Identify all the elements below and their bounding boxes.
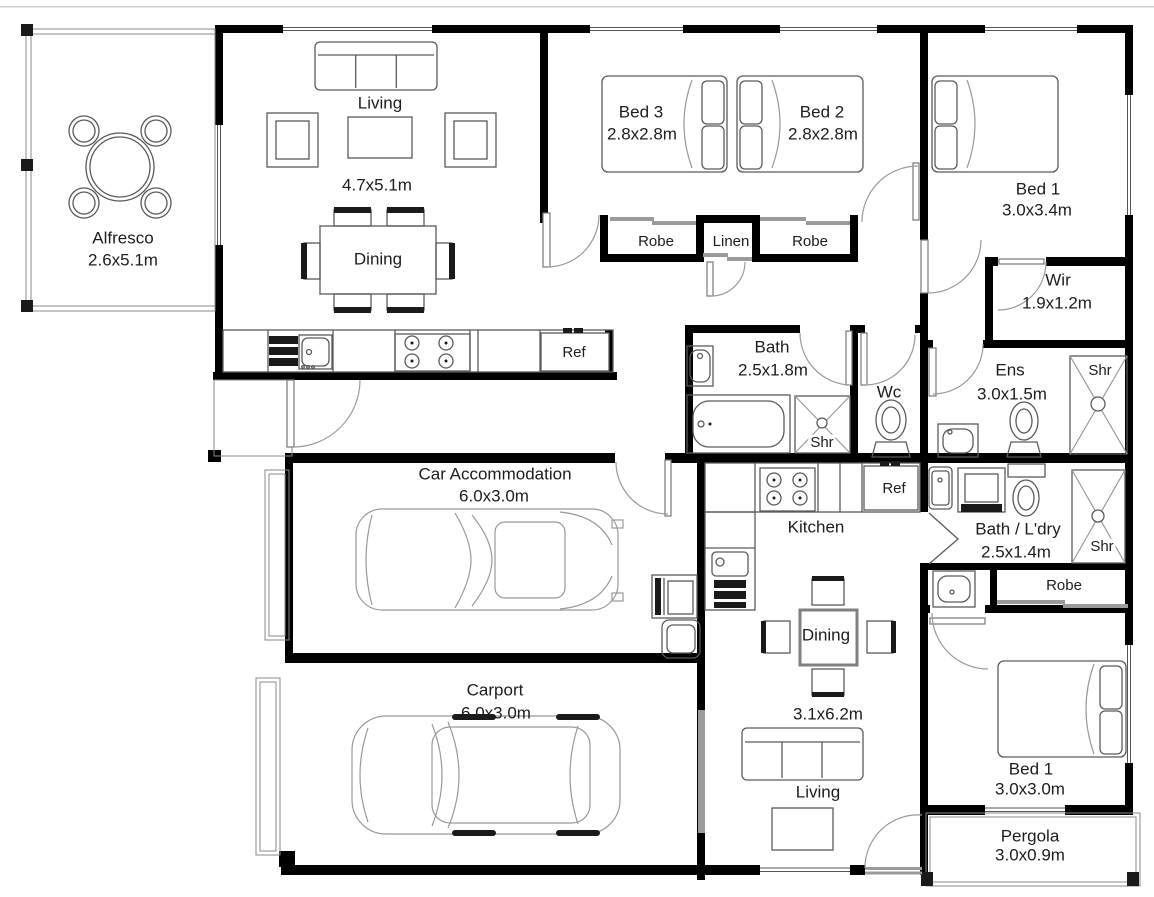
label-shr-ens: Shr: [1086, 363, 1113, 380]
garage-side-panel: [265, 470, 289, 640]
label-pergola-size: 3.0x0.9m: [995, 847, 1065, 866]
coffee-table: [348, 117, 412, 158]
label-living-unit: Living: [796, 784, 840, 803]
label-bath-name: Bath: [755, 339, 790, 358]
coffee-table: [772, 808, 833, 850]
walls: [208, 25, 1133, 880]
label-bed2-size: 2.8x2.8m: [788, 126, 858, 145]
label-bath-size: 2.5x1.8m: [738, 362, 808, 381]
label-car-accommodation-name: Car Accommodation: [418, 466, 571, 485]
carport-side-fence: [256, 678, 280, 855]
label-alfresco-name: Alfresco: [92, 230, 153, 249]
cooktop: [760, 468, 815, 511]
label-kitchen-unit: Kitchen: [788, 519, 845, 538]
linen-sliding-door[interactable]: [703, 253, 752, 261]
cooktop: [395, 334, 470, 371]
wc-door: [861, 333, 915, 385]
bed2-door: [862, 163, 919, 222]
pillow: [702, 126, 724, 169]
toilet: [1008, 464, 1045, 516]
label-robe-bed2: Robe: [792, 234, 828, 251]
toilet: [1007, 402, 1041, 457]
bed1-unit-furniture: [998, 661, 1126, 757]
label-dining-unit-name: Dining: [802, 627, 850, 646]
pillow: [935, 126, 957, 169]
label-bed1-main-name: Bed 1: [1016, 181, 1060, 200]
label-dining-main-name: Dining: [354, 251, 402, 270]
label-bed1-main-size: 3.0x3.4m: [1002, 202, 1072, 221]
vanity-sink: [933, 571, 975, 607]
window-bed1-right: [1125, 95, 1133, 215]
laundry-bifold-door: [929, 513, 958, 564]
doors[interactable]: [287, 163, 1046, 875]
label-shr-bath: Shr: [808, 435, 835, 452]
washing-machine: [652, 575, 697, 618]
label-dining-unit-size: 3.1x6.2m: [793, 706, 863, 725]
label-ens-name: Ens: [995, 362, 1024, 381]
floor-plan: Alfresco 2.6x5.1m Living 4.7x5.1m Dining…: [0, 0, 1154, 897]
bed3-door: [543, 213, 599, 267]
label-linen: Linen: [713, 234, 750, 251]
window-living-top: [283, 25, 432, 33]
label-car-accommodation-size: 6.0x3.0m: [459, 488, 529, 507]
carport-gate[interactable]: [698, 710, 705, 833]
wc-fixtures: [872, 400, 910, 457]
alfresco-table-setting: [69, 116, 171, 218]
living-unit-entry-door: [865, 815, 922, 875]
robe-bed3-sliding-door[interactable]: [610, 217, 696, 225]
hall-door: [707, 262, 745, 296]
armchair: [445, 113, 496, 167]
label-ens-size: 3.0x1.5m: [977, 386, 1047, 405]
label-ref-main: Ref: [562, 345, 585, 362]
pillow: [740, 126, 762, 169]
label-wc: Wc: [877, 384, 902, 403]
kitchen-sink: [712, 552, 748, 608]
car-accommodation-contents: [356, 509, 700, 658]
sofa: [742, 728, 863, 780]
window-living-unit-south: [760, 866, 850, 874]
label-bed3-size: 2.8x2.8m: [607, 126, 677, 145]
laundry-tub: [929, 467, 952, 509]
laundry-tub: [662, 620, 700, 658]
toilet: [872, 400, 910, 457]
carport-contents: [352, 714, 620, 836]
bathtub: [687, 395, 790, 453]
label-bath-laundry-name: Bath / L'dry: [973, 521, 1062, 540]
pillow: [935, 81, 957, 124]
washing-machine: [958, 468, 1005, 512]
page-border-line: [0, 6, 1154, 8]
sliding-door-living-west[interactable]: [215, 125, 223, 245]
label-bed2-name: Bed 2: [800, 104, 844, 123]
label-ref-unit: Ref: [882, 481, 905, 498]
label-alfresco-size: 2.6x5.1m: [88, 252, 158, 271]
ens-door: [929, 344, 983, 396]
label-carport-name: Carport: [467, 682, 524, 701]
window-bed2: [780, 25, 877, 33]
entry-porch: [214, 380, 292, 456]
pillow: [702, 81, 724, 124]
bed1-unit-door: [930, 613, 988, 669]
floor-plan-drawing: [0, 0, 1154, 897]
window-bed1-top: [985, 25, 1077, 33]
label-bed1-unit-size: 3.0x3.0m: [995, 781, 1065, 800]
label-bed1-unit-name: Bed 1: [1009, 761, 1053, 780]
label-living-main-name: Living: [358, 95, 402, 114]
pillow: [740, 81, 762, 124]
label-robe-bed3: Robe: [638, 234, 674, 251]
kitchen-main: [223, 328, 613, 372]
bed1-main-door: [921, 240, 981, 293]
armchair: [267, 113, 318, 167]
pillow: [1100, 711, 1122, 754]
label-bed3-name: Bed 3: [619, 104, 663, 123]
label-robe-unit: Robe: [1046, 578, 1082, 595]
label-wir-name: Wir: [1045, 272, 1070, 291]
sofa: [315, 42, 437, 90]
car-top-view: [352, 714, 620, 836]
robe-bed2-sliding-door[interactable]: [760, 217, 850, 225]
kitchen-sink: [269, 335, 332, 369]
entry-door: [287, 380, 360, 447]
car-top-view: [356, 509, 623, 610]
label-wir-size: 1.9x1.2m: [1022, 295, 1092, 314]
garage-door: [616, 460, 671, 516]
label-living-main-size: 4.7x5.1m: [342, 177, 412, 196]
label-bath-laundry-size: 2.5x1.4m: [979, 544, 1053, 563]
pillow: [1100, 666, 1122, 709]
window-bed3: [590, 25, 683, 33]
bed1-main-furniture: [932, 76, 1058, 172]
label-pergola-name: Pergola: [1001, 828, 1060, 847]
vanity-sink: [938, 424, 978, 457]
label-carport-size: 6.0x3.0m: [461, 705, 531, 724]
label-shr-unit: Shr: [1088, 539, 1115, 556]
